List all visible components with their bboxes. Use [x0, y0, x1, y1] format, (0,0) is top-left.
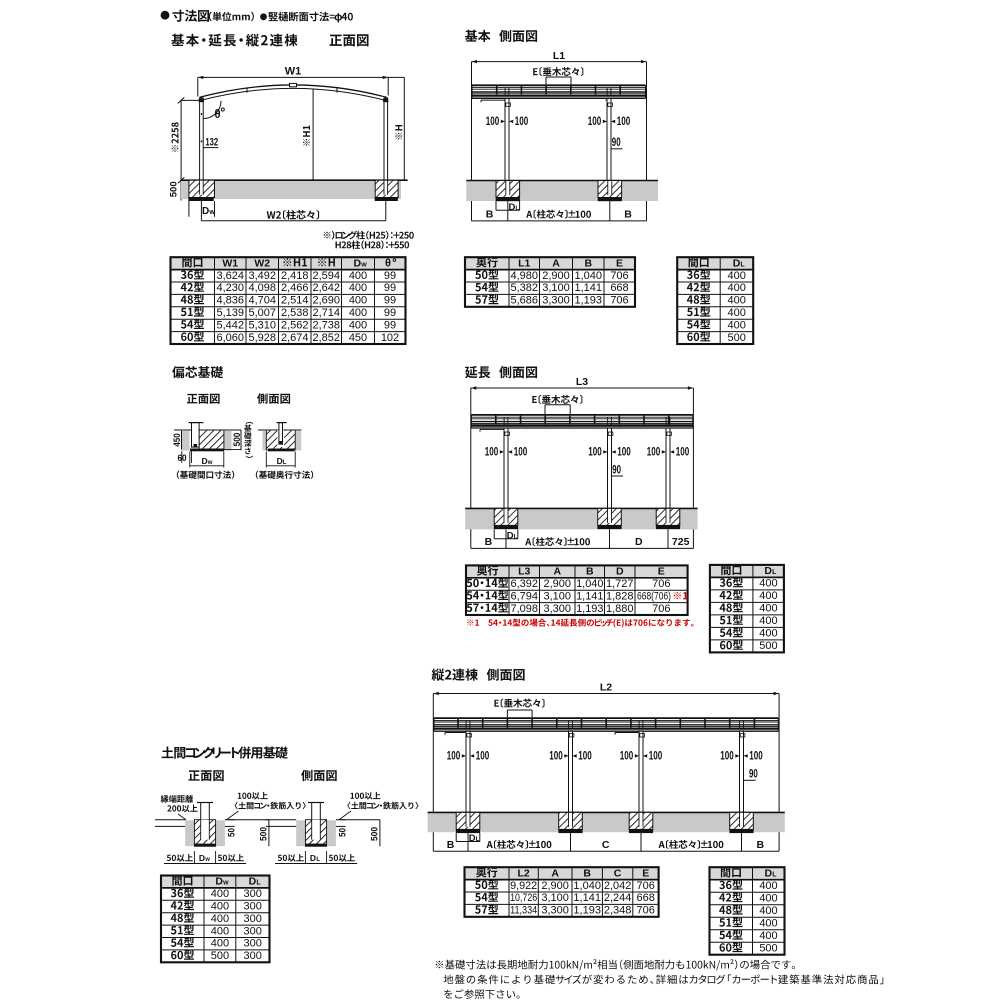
svg-text:6,794: 6,794 [510, 590, 538, 602]
svg-text:1,193: 1,193 [576, 603, 603, 615]
svg-text:100: 100 [588, 447, 602, 459]
svg-text:B: B [485, 536, 493, 548]
svg-text:400: 400 [728, 295, 746, 307]
svg-text:400: 400 [349, 282, 367, 294]
svg-text:4,836: 4,836 [216, 295, 244, 307]
svg-text:100: 100 [486, 116, 500, 128]
svg-text:1,040: 1,040 [573, 880, 601, 892]
svg-text:A: A [553, 566, 561, 578]
svg-text:B: B [583, 867, 591, 879]
svg-text:1,040: 1,040 [576, 578, 603, 590]
svg-text:5,686: 5,686 [510, 295, 538, 307]
svg-text:400: 400 [728, 270, 746, 282]
svg-text:2,042: 2,042 [604, 880, 632, 892]
svg-text:400: 400 [759, 930, 777, 942]
svg-text:3,492: 3,492 [248, 270, 276, 282]
svg-text:400: 400 [728, 319, 746, 331]
svg-text:1,040: 1,040 [574, 270, 602, 282]
svg-text:L: L [740, 261, 745, 268]
svg-text:2,714: 2,714 [312, 307, 340, 319]
svg-text:100: 100 [617, 447, 631, 459]
svg-text:6,060: 6,060 [216, 332, 244, 344]
svg-text:100: 100 [476, 751, 490, 763]
svg-text:450: 450 [172, 433, 183, 447]
svg-text:D: D [202, 206, 209, 217]
svg-text:100: 100 [617, 116, 631, 128]
svg-text:400: 400 [759, 628, 777, 640]
svg-text:θ: θ [385, 257, 391, 269]
svg-text:400: 400 [759, 918, 777, 930]
svg-text:668: 668 [610, 282, 628, 294]
svg-text:668: 668 [637, 892, 655, 904]
svg-text:100: 100 [647, 447, 661, 459]
svg-text:400: 400 [728, 282, 746, 294]
svg-text:L: L [772, 569, 777, 576]
svg-text:5,928: 5,928 [248, 332, 276, 344]
svg-text:D: D [199, 853, 205, 863]
svg-text:7,098: 7,098 [510, 603, 538, 615]
svg-text:3,100: 3,100 [541, 892, 569, 904]
svg-text:1,193: 1,193 [573, 905, 601, 917]
svg-text:400: 400 [759, 893, 777, 905]
svg-text:5,007: 5,007 [248, 307, 276, 319]
svg-text:725: 725 [672, 536, 690, 548]
svg-text:2,674: 2,674 [281, 332, 309, 344]
svg-text:99: 99 [384, 319, 396, 331]
svg-text:500: 500 [369, 827, 379, 841]
svg-text:2,466: 2,466 [281, 282, 309, 294]
svg-text:60: 60 [178, 453, 187, 464]
svg-text:300: 300 [243, 888, 261, 900]
svg-text:1,880: 1,880 [606, 603, 634, 615]
svg-text:50: 50 [227, 828, 237, 837]
svg-text:132: 132 [205, 136, 218, 148]
svg-text:400: 400 [349, 295, 367, 307]
svg-text:2,244: 2,244 [604, 892, 632, 904]
svg-text:400: 400 [211, 888, 229, 900]
svg-text:90: 90 [749, 769, 758, 781]
svg-text:2,594: 2,594 [312, 270, 340, 282]
svg-text:99: 99 [384, 282, 396, 294]
svg-text:400: 400 [349, 270, 367, 282]
svg-text:706: 706 [652, 603, 670, 615]
svg-text:300: 300 [243, 913, 261, 925]
svg-text:4,980: 4,980 [510, 270, 538, 282]
svg-text:B: B [624, 209, 632, 221]
svg-text:100: 100 [588, 116, 602, 128]
svg-text:2,690: 2,690 [312, 295, 340, 307]
svg-text:w: w [204, 857, 210, 863]
svg-text:2,900: 2,900 [543, 578, 571, 590]
svg-text:400: 400 [759, 603, 777, 615]
svg-text:L: L [772, 872, 777, 879]
svg-text:100: 100 [549, 751, 563, 763]
svg-text:400: 400 [349, 307, 367, 319]
svg-text:L1: L1 [553, 50, 565, 62]
svg-text:5,139: 5,139 [216, 307, 244, 319]
svg-text:100: 100 [485, 447, 499, 459]
svg-text:100: 100 [515, 116, 529, 128]
svg-text:100: 100 [649, 751, 663, 763]
svg-text:2,348: 2,348 [604, 905, 632, 917]
svg-text:L: L [514, 533, 518, 540]
svg-text:500: 500 [211, 950, 229, 962]
svg-text:L: L [316, 857, 320, 863]
svg-text:100: 100 [447, 751, 461, 763]
svg-text:4,098: 4,098 [248, 282, 276, 294]
svg-text:L2: L2 [518, 867, 530, 879]
svg-text:400: 400 [211, 925, 229, 937]
svg-text:w: w [207, 460, 213, 466]
svg-text:300: 300 [243, 925, 261, 937]
svg-text:500: 500 [169, 181, 180, 197]
svg-text:400: 400 [759, 578, 777, 590]
svg-text:400: 400 [211, 901, 229, 913]
svg-text:L3: L3 [518, 566, 530, 578]
svg-text:706: 706 [610, 270, 628, 282]
svg-text:3,300: 3,300 [542, 295, 570, 307]
svg-text:W1: W1 [285, 66, 302, 78]
svg-text:1,828: 1,828 [606, 590, 634, 602]
svg-text:L: L [283, 460, 287, 466]
svg-text:D: D [635, 536, 643, 548]
svg-text:2,538: 2,538 [281, 307, 309, 319]
svg-text:3,100: 3,100 [542, 282, 570, 294]
svg-text:L2: L2 [600, 682, 612, 694]
svg-text:D: D [616, 566, 624, 578]
svg-text:300: 300 [243, 901, 261, 913]
svg-text:w: w [360, 261, 367, 268]
svg-text:400: 400 [211, 938, 229, 950]
svg-text:2,900: 2,900 [541, 880, 569, 892]
svg-text:B: B [586, 566, 594, 578]
svg-text:706: 706 [637, 880, 655, 892]
svg-text:5,382: 5,382 [510, 282, 538, 294]
svg-text:L1: L1 [518, 257, 530, 269]
svg-text:500: 500 [759, 640, 777, 652]
svg-text:100: 100 [720, 751, 734, 763]
svg-text:1,141: 1,141 [573, 892, 601, 904]
svg-text:100: 100 [676, 447, 690, 459]
svg-text:2,738: 2,738 [312, 319, 340, 331]
svg-text:1,727: 1,727 [606, 578, 634, 590]
svg-text:99: 99 [384, 307, 396, 319]
svg-text:B: B [757, 839, 765, 851]
svg-text:400: 400 [759, 615, 777, 627]
svg-text:100: 100 [514, 447, 528, 459]
svg-text:L3: L3 [576, 376, 588, 388]
svg-text:D: D [310, 853, 316, 863]
svg-text:C: C [614, 867, 622, 879]
svg-text:99: 99 [384, 295, 396, 307]
svg-text:θ: θ [214, 109, 220, 121]
svg-text:2,852: 2,852 [312, 332, 340, 344]
svg-text:W1: W1 [222, 257, 238, 269]
svg-text:102: 102 [381, 332, 399, 344]
svg-text:B: B [447, 839, 455, 851]
svg-text:L: L [515, 205, 519, 212]
svg-text:11,334: 11,334 [510, 905, 537, 917]
svg-text:B: B [584, 257, 592, 269]
svg-text:400: 400 [759, 880, 777, 892]
svg-text:5,310: 5,310 [248, 319, 276, 331]
svg-text:9,922: 9,922 [510, 880, 537, 892]
svg-text:400: 400 [211, 913, 229, 925]
svg-text:400: 400 [728, 307, 746, 319]
svg-text:B: B [486, 209, 494, 221]
svg-text:w: w [208, 209, 215, 216]
svg-text:5,442: 5,442 [216, 319, 244, 331]
svg-text:500: 500 [232, 433, 243, 447]
svg-text:2,642: 2,642 [312, 282, 340, 294]
svg-text:50: 50 [338, 828, 348, 837]
svg-text:500: 500 [258, 827, 268, 841]
svg-text:C: C [602, 839, 610, 851]
svg-text:706: 706 [637, 905, 655, 917]
svg-text:100: 100 [749, 751, 763, 763]
svg-text:2,562: 2,562 [281, 319, 309, 331]
svg-text:4,230: 4,230 [216, 282, 244, 294]
svg-text:2,900: 2,900 [542, 270, 570, 282]
svg-text:3,100: 3,100 [543, 590, 571, 602]
svg-text:706: 706 [610, 295, 628, 307]
svg-text:90: 90 [612, 137, 621, 149]
svg-text:500: 500 [759, 943, 777, 955]
svg-text:A: A [551, 867, 559, 879]
svg-text:2,514: 2,514 [281, 295, 309, 307]
svg-text:3,300: 3,300 [543, 603, 571, 615]
svg-text:3,300: 3,300 [541, 905, 569, 917]
svg-text:1,141: 1,141 [576, 590, 603, 602]
svg-text:668(706): 668(706) [637, 590, 671, 602]
svg-text:99: 99 [384, 270, 396, 282]
svg-text:2,418: 2,418 [281, 270, 309, 282]
svg-text:W2: W2 [254, 257, 270, 269]
svg-text:450: 450 [349, 332, 367, 344]
svg-text:10,726: 10,726 [510, 892, 537, 904]
svg-text:3,624: 3,624 [216, 270, 244, 282]
svg-text:1,141: 1,141 [574, 282, 602, 294]
svg-text:L: L [256, 880, 261, 887]
svg-text:400: 400 [759, 905, 777, 917]
svg-text:706: 706 [652, 578, 670, 590]
svg-text:E: E [642, 867, 649, 879]
svg-text:A: A [552, 257, 560, 269]
svg-text:L: L [476, 836, 480, 843]
svg-text:E: E [658, 566, 665, 578]
svg-text:500: 500 [728, 332, 746, 344]
svg-text:100: 100 [620, 751, 634, 763]
svg-text:6,392: 6,392 [510, 578, 538, 590]
svg-text:90: 90 [612, 465, 621, 477]
svg-text:w: w [222, 880, 229, 887]
svg-text:E: E [616, 257, 623, 269]
svg-text:400: 400 [349, 319, 367, 331]
svg-text:4,704: 4,704 [248, 295, 276, 307]
svg-text:300: 300 [243, 950, 261, 962]
svg-text:1,193: 1,193 [574, 295, 602, 307]
svg-text:400: 400 [759, 590, 777, 602]
svg-text:100: 100 [578, 751, 592, 763]
svg-text:300: 300 [243, 938, 261, 950]
